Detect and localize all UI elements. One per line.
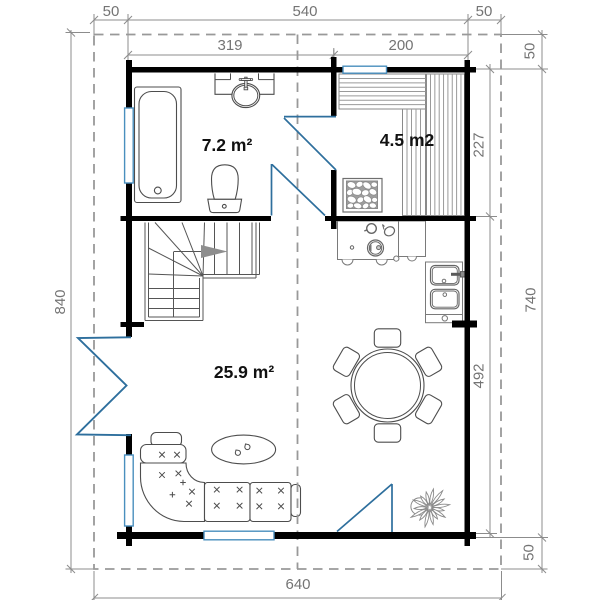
svg-text:840: 840: [52, 289, 69, 314]
svg-text:200: 200: [388, 37, 413, 54]
svg-text:4.5 m2: 4.5 m2: [380, 130, 435, 150]
svg-text:492: 492: [471, 363, 488, 388]
svg-text:319: 319: [217, 37, 242, 54]
svg-text:740: 740: [523, 287, 540, 312]
svg-text:7.2 m²: 7.2 m²: [202, 135, 253, 155]
svg-text:50: 50: [476, 3, 493, 20]
svg-text:640: 640: [285, 576, 310, 593]
svg-text:540: 540: [292, 3, 317, 20]
svg-text:50: 50: [103, 3, 120, 20]
svg-text:25.9 m²: 25.9 m²: [214, 362, 274, 382]
svg-text:50: 50: [521, 544, 538, 561]
svg-text:227: 227: [471, 132, 488, 157]
svg-text:50: 50: [522, 43, 539, 60]
